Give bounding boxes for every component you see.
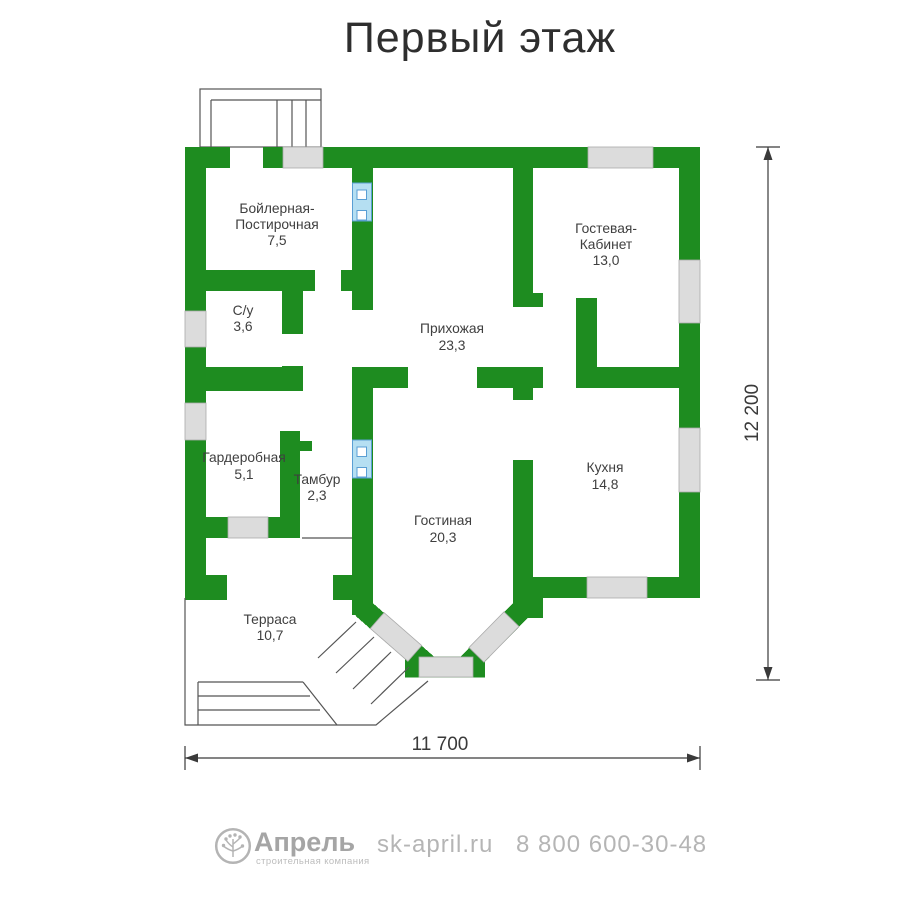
room-name: Гостевая-: [575, 221, 637, 236]
wall-segment: [352, 367, 408, 388]
floor-plan-drawing: Бойлерная- Постирочная 7,5 Гостевая- Каб…: [0, 0, 900, 900]
arrowhead-left-icon: [185, 754, 198, 763]
company-name: Апрель: [254, 827, 355, 858]
wall-stub: [341, 270, 352, 291]
terrace-boundary: [185, 598, 428, 725]
wall-stub: [533, 293, 543, 307]
room-labels: Бойлерная- Постирочная 7,5 Гостевая- Каб…: [202, 201, 637, 643]
wall-pillar: [206, 575, 227, 600]
room-label-kitchen: Кухня 14,8: [587, 460, 624, 492]
room-name: Бойлерная-: [239, 201, 314, 216]
arrowhead-up-icon: [764, 147, 773, 160]
room-label-terrace: Терраса 10,7: [244, 612, 297, 643]
room-name: Тамбур: [294, 472, 341, 487]
window: [587, 577, 647, 598]
company-tagline: строительная компания: [256, 856, 370, 867]
room-area: 10,7: [257, 628, 284, 643]
wall-segment: [576, 298, 597, 388]
dimension-vertical: 12 200: [742, 147, 780, 680]
arrowhead-down-icon: [764, 667, 773, 680]
door-boiler-hallway: [353, 183, 372, 221]
arrowhead-right-icon: [687, 754, 700, 763]
dimension-horizontal: 11 700: [185, 734, 700, 770]
phone-number[interactable]: 8 800 600-30-48: [516, 831, 707, 859]
window: [185, 403, 206, 440]
wall-segment: [282, 291, 303, 334]
door-panel: [357, 468, 367, 478]
bay-window-right: [469, 612, 519, 662]
room-area: 14,8: [592, 477, 619, 492]
wall-stub: [300, 441, 312, 451]
porch-steps: [200, 89, 321, 147]
terrace-steps-lines: [198, 682, 337, 725]
door-vestibule-living: [353, 440, 372, 478]
wall-segment: [477, 367, 543, 388]
room-area: 13,0: [593, 253, 620, 268]
room-label-wc: С/у 3,6: [233, 303, 254, 334]
window: [283, 147, 323, 168]
porch-outline: [200, 89, 321, 147]
room-area: 5,1: [234, 467, 253, 482]
room-area: 20,3: [430, 530, 457, 545]
room-label-wardrobe: Гардеробная 5,1: [202, 450, 285, 482]
window: [588, 147, 653, 168]
wall-stub: [513, 388, 533, 400]
wall-segment: [323, 147, 588, 168]
room-label-boiler: Бойлерная- Постирочная 7,5: [235, 201, 319, 248]
window: [185, 311, 206, 347]
room-label-hallway: Прихожая 23,3: [420, 321, 484, 353]
room-area: 2,3: [307, 488, 327, 503]
room-label-vestibule: Тамбур 2,3: [294, 472, 341, 503]
website-link[interactable]: sk-april.ru: [377, 831, 493, 859]
room-name: Гостиная: [414, 513, 472, 528]
floor-plan-page: Первый этаж: [0, 0, 900, 900]
window: [679, 260, 700, 323]
wall-segment: [206, 270, 315, 291]
wall-segment: [679, 147, 700, 260]
wall-pillar: [333, 575, 373, 600]
bay-window-bottom: [419, 657, 473, 677]
room-area: 23,3: [439, 338, 466, 353]
door-panel: [357, 447, 367, 457]
wall-segment: [185, 347, 206, 403]
room-area: 7,5: [267, 233, 287, 248]
room-name: Гардеробная: [202, 450, 285, 465]
wall-segment: [185, 147, 206, 311]
dimension-width-value: 11 700: [412, 734, 469, 755]
bay-window-left: [370, 613, 421, 662]
room-name: Кабинет: [580, 237, 633, 252]
door-panel: [357, 211, 367, 221]
tree-icon: [224, 838, 242, 857]
room-name: С/у: [233, 303, 254, 318]
room-area: 3,6: [233, 319, 253, 334]
room-name: Кухня: [587, 460, 624, 475]
room-label-living: Гостиная 20,3: [414, 513, 472, 545]
wall-segment: [513, 168, 533, 307]
window: [679, 428, 700, 492]
room-name: Постирочная: [235, 217, 319, 232]
window: [228, 517, 268, 538]
door-panel: [357, 190, 367, 200]
company-logo: [213, 826, 253, 866]
wall-segment: [206, 367, 303, 391]
room-name: Прихожая: [420, 321, 484, 336]
wall-segment: [263, 147, 283, 168]
room-name: Терраса: [244, 612, 297, 627]
dimension-height-value: 12 200: [742, 384, 763, 442]
room-label-guest: Гостевая- Кабинет 13,0: [575, 221, 637, 268]
